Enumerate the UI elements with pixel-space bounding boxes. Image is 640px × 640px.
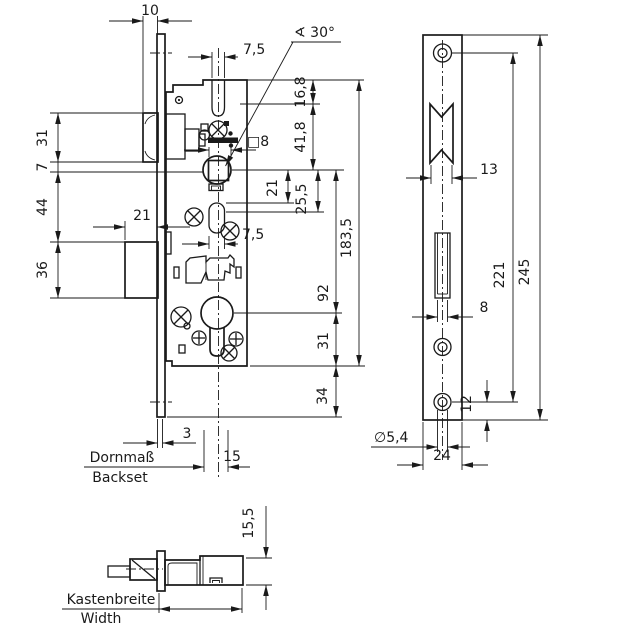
edge-slot [174,267,179,278]
lock-technical-drawing: 10 7,5 ∢ 30° □8 [0,0,640,640]
faceplate-view: 13 8 12 221 245 ∅5 [371,35,548,470]
angle-label: ∢ 30° [294,25,335,41]
dim-15-5: 15,5 [241,507,257,538]
dim-36: 36 [35,261,51,279]
dim-slot-width-bottom: 7,5 [242,227,264,243]
screw-icon [221,222,239,240]
backset-label-en: Backset [92,470,148,486]
edge-slot [236,267,241,278]
faceplate-dimensions: 13 8 12 221 245 ∅5 [371,35,548,470]
dim-diameter: ∅5,4 [374,430,409,446]
dim-16-8: 16,8 [293,76,309,107]
dim-13: 13 [480,162,498,178]
rivet [228,131,232,135]
front-view: 10 7,5 ∢ 30° □8 [35,3,365,486]
side-view: 15,5 Kastenbreite Width [62,506,272,627]
dim-92: 92 [316,284,332,302]
latch-tail-step [185,129,199,151]
dim-slot-width-top: 7,5 [243,42,265,58]
dim-latch-protrusion: 10 [141,3,159,19]
follower-hub [203,156,231,191]
dim-24: 24 [433,448,451,464]
case-tab-inner [213,581,220,584]
dim-245: 245 [517,259,533,286]
adjust-screw-icon [229,332,243,346]
dim-12: 12 [459,395,475,413]
width-label-de: Kastenbreite [67,592,156,608]
euro-cylinder-hole [201,297,233,356]
dim-7: 7 [35,163,51,172]
dim-44: 44 [35,198,51,216]
pin-hole-center [178,99,180,101]
dim-34: 34 [315,387,331,405]
dim-21-bolt: 21 [133,208,151,224]
latch-bolt-side [108,566,130,577]
front-dimensions: 10 7,5 ∢ 30° □8 [35,3,365,486]
backset-label-de: Dornmaß [90,450,155,466]
follower-tab-inner [212,186,221,191]
dim-31-left: 31 [35,129,51,147]
dim-183-5: 183,5 [339,218,355,258]
latch-bevel [132,560,155,579]
latch-cutout [430,104,453,163]
case-side-inner [168,563,197,585]
dim-3: 3 [183,426,192,442]
dim-221: 221 [492,262,508,289]
guide-slot-bottom [209,203,225,233]
dim-41-8: 41,8 [293,121,309,152]
dim-31-right: 31 [316,332,332,350]
dim-8: 8 [480,300,489,316]
faceplate-edge [157,34,165,417]
bolt-mechanism [186,255,234,283]
latch-tail [166,114,185,159]
dim-15: 15 [223,449,241,465]
stop-pin [224,121,229,126]
side-dimensions: 15,5 Kastenbreite Width [62,506,272,627]
screw-icon [171,307,191,327]
deadbolt [125,242,158,298]
faceplate-side [157,551,165,591]
small-slot [179,345,185,353]
adjust-screw-icon [192,331,206,345]
width-label-en: Width [81,611,122,627]
dim-21-vertical: 21 [265,179,281,197]
dim-25-5: 25,5 [294,183,310,214]
screw-icon [185,208,203,226]
latch-bolt [143,113,205,162]
case-side [165,556,243,585]
dim-spindle-square: □8 [247,134,269,150]
